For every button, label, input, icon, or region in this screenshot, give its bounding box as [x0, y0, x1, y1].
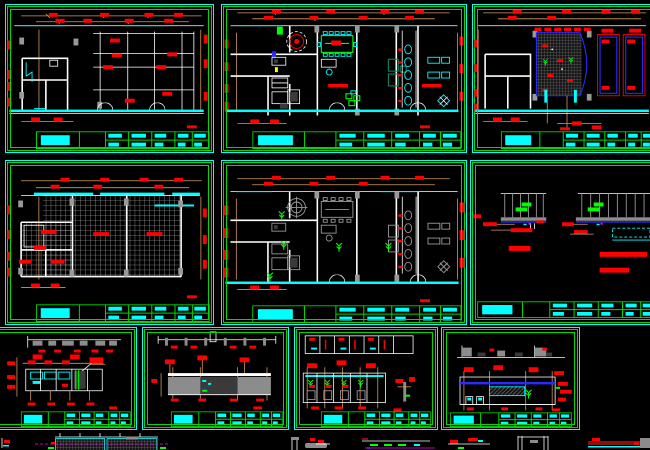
sheet-structural-plan[interactable] — [5, 4, 214, 153]
sheet-10-drawing — [442, 328, 579, 429]
sheet-7-drawing — [0, 328, 136, 429]
sheet-elevation-1[interactable] — [0, 327, 137, 430]
sheet-hatched-plan[interactable] — [472, 4, 650, 153]
sheet-ceiling-details[interactable] — [470, 160, 650, 325]
sheet-3-drawing — [473, 5, 650, 152]
sheet-furniture-plan[interactable] — [221, 160, 467, 325]
cad-canvas — [0, 0, 650, 450]
sheet-2-drawing — [222, 5, 466, 152]
sheet-1-drawing — [6, 5, 213, 152]
sheet-furnished-plan[interactable] — [221, 4, 467, 153]
sheet-8-drawing — [143, 328, 288, 429]
cutoff-fragments — [0, 432, 650, 450]
sheet-elevation-2[interactable] — [142, 327, 289, 430]
sheet-reception-elevation[interactable] — [441, 327, 580, 430]
sheet-5-drawing — [222, 161, 466, 324]
sheet-6-drawing — [471, 161, 650, 324]
sheet-ceiling-plan[interactable] — [5, 160, 214, 325]
sheet-4-drawing — [6, 161, 213, 324]
sheet-9-drawing — [295, 328, 437, 429]
sheet-toilet-elevations[interactable] — [294, 327, 438, 430]
